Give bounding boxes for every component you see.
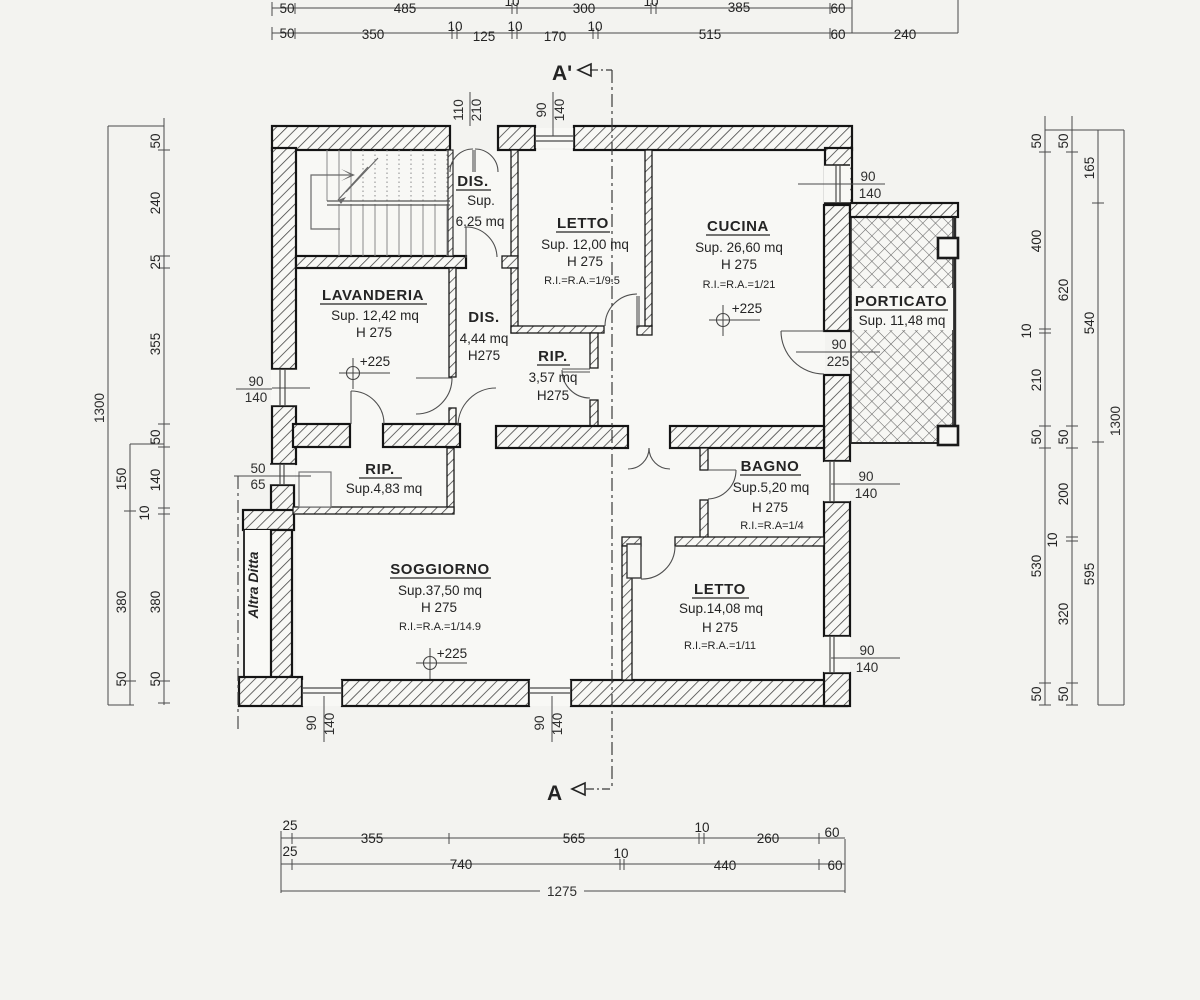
svg-text:140: 140 bbox=[856, 660, 879, 675]
svg-text:200: 200 bbox=[1056, 483, 1071, 506]
svg-text:Sup. 26,60 mq: Sup. 26,60 mq bbox=[695, 240, 783, 255]
svg-text:50: 50 bbox=[1056, 686, 1071, 701]
svg-text:6,25 mq: 6,25 mq bbox=[456, 214, 505, 229]
svg-text:Altra Ditta: Altra Ditta bbox=[245, 551, 261, 619]
svg-text:440: 440 bbox=[714, 858, 737, 873]
svg-text:140: 140 bbox=[322, 713, 337, 736]
svg-text:170: 170 bbox=[544, 29, 567, 44]
svg-text:R.I.=R.A.=1/9.5: R.I.=R.A.=1/9.5 bbox=[544, 275, 620, 287]
svg-text:Sup. 11,48 mq: Sup. 11,48 mq bbox=[859, 313, 946, 328]
svg-text:Sup.5,20 mq: Sup.5,20 mq bbox=[733, 480, 810, 495]
svg-text:620: 620 bbox=[1056, 279, 1071, 302]
svg-text:10: 10 bbox=[504, 0, 519, 9]
svg-text:10: 10 bbox=[694, 820, 709, 835]
svg-text:10: 10 bbox=[613, 846, 628, 861]
svg-text:65: 65 bbox=[250, 477, 265, 492]
svg-text:10: 10 bbox=[447, 19, 462, 34]
svg-text:H275: H275 bbox=[537, 388, 569, 403]
svg-text:25: 25 bbox=[148, 254, 163, 269]
svg-text:R.I.=R.A=1/4: R.I.=R.A=1/4 bbox=[740, 520, 804, 532]
svg-text:Sup. 12,00 mq: Sup. 12,00 mq bbox=[541, 237, 629, 252]
svg-text:DIS.: DIS. bbox=[457, 173, 489, 190]
svg-text:90: 90 bbox=[858, 469, 873, 484]
svg-text:385: 385 bbox=[728, 0, 751, 15]
svg-text:R.I.=R.A.=1/11: R.I.=R.A.=1/11 bbox=[684, 640, 756, 652]
svg-text:400: 400 bbox=[1029, 230, 1044, 253]
svg-text:240: 240 bbox=[894, 27, 917, 42]
svg-text:LETTO: LETTO bbox=[557, 215, 609, 232]
svg-text:50: 50 bbox=[279, 26, 294, 41]
svg-text:240: 240 bbox=[148, 192, 163, 215]
svg-text:60: 60 bbox=[824, 825, 839, 840]
svg-text:A': A' bbox=[552, 62, 572, 85]
svg-text:225: 225 bbox=[827, 354, 850, 369]
svg-text:50: 50 bbox=[1029, 429, 1044, 444]
svg-text:+225: +225 bbox=[732, 301, 762, 316]
svg-text:LETTO: LETTO bbox=[694, 581, 746, 598]
svg-text:Sup.: Sup. bbox=[467, 193, 495, 208]
svg-text:165: 165 bbox=[1082, 157, 1097, 180]
svg-text:150: 150 bbox=[114, 468, 129, 491]
svg-text:PORTICATO: PORTICATO bbox=[855, 293, 947, 310]
svg-text:210: 210 bbox=[469, 99, 484, 122]
svg-text:BAGNO: BAGNO bbox=[741, 458, 800, 475]
svg-text:140: 140 bbox=[148, 469, 163, 492]
svg-text:H 275: H 275 bbox=[721, 257, 757, 272]
svg-text:90: 90 bbox=[534, 102, 549, 117]
svg-text:+225: +225 bbox=[437, 646, 467, 661]
svg-text:320: 320 bbox=[1056, 603, 1071, 626]
svg-text:140: 140 bbox=[550, 713, 565, 736]
svg-text:595: 595 bbox=[1082, 563, 1097, 586]
svg-text:H 275: H 275 bbox=[356, 325, 392, 340]
svg-text:1300: 1300 bbox=[92, 393, 107, 423]
svg-text:355: 355 bbox=[148, 333, 163, 356]
svg-text:540: 540 bbox=[1082, 312, 1097, 335]
svg-text:140: 140 bbox=[855, 486, 878, 501]
svg-text:140: 140 bbox=[859, 186, 882, 201]
svg-text:4,44 mq: 4,44 mq bbox=[460, 331, 509, 346]
svg-text:RIP.: RIP. bbox=[538, 348, 568, 365]
svg-text:LAVANDERIA: LAVANDERIA bbox=[322, 287, 424, 304]
svg-text:SOGGIORNO: SOGGIORNO bbox=[390, 561, 490, 578]
svg-text:90: 90 bbox=[860, 169, 875, 184]
svg-text:50: 50 bbox=[279, 1, 294, 16]
svg-text:300: 300 bbox=[573, 1, 596, 16]
svg-text:H 275: H 275 bbox=[421, 600, 457, 615]
svg-text:CUCINA: CUCINA bbox=[707, 218, 769, 235]
svg-text:50: 50 bbox=[250, 461, 265, 476]
svg-text:Sup.37,50 mq: Sup.37,50 mq bbox=[398, 583, 482, 598]
svg-text:A: A bbox=[547, 782, 562, 805]
svg-text:50: 50 bbox=[1029, 686, 1044, 701]
svg-text:90: 90 bbox=[248, 374, 263, 389]
svg-text:60: 60 bbox=[830, 27, 845, 42]
svg-text:25: 25 bbox=[282, 844, 297, 859]
svg-text:260: 260 bbox=[757, 831, 780, 846]
svg-text:Sup.14,08 mq: Sup.14,08 mq bbox=[679, 601, 763, 616]
svg-text:1300: 1300 bbox=[1108, 406, 1123, 436]
svg-text:380: 380 bbox=[148, 591, 163, 614]
svg-text:485: 485 bbox=[394, 1, 417, 16]
svg-text:355: 355 bbox=[361, 831, 384, 846]
svg-text:1275: 1275 bbox=[547, 884, 577, 899]
svg-text:10: 10 bbox=[587, 19, 602, 34]
svg-text:R.I.=R.A.=1/14.9: R.I.=R.A.=1/14.9 bbox=[399, 621, 481, 633]
svg-text:Sup.4,83 mq: Sup.4,83 mq bbox=[346, 481, 423, 496]
svg-text:140: 140 bbox=[552, 99, 567, 122]
svg-text:R.I.=R.A.=1/21: R.I.=R.A.=1/21 bbox=[703, 279, 776, 291]
svg-text:50: 50 bbox=[148, 429, 163, 444]
svg-text:125: 125 bbox=[473, 29, 496, 44]
svg-text:90: 90 bbox=[304, 715, 319, 730]
svg-text:DIS.: DIS. bbox=[468, 309, 500, 326]
svg-text:10: 10 bbox=[1019, 323, 1034, 338]
svg-text:H 275: H 275 bbox=[567, 254, 603, 269]
svg-text:+225: +225 bbox=[360, 354, 390, 369]
svg-text:50: 50 bbox=[148, 671, 163, 686]
svg-text:90: 90 bbox=[859, 643, 874, 658]
svg-text:10: 10 bbox=[1045, 532, 1060, 547]
svg-text:140: 140 bbox=[245, 390, 268, 405]
svg-text:10: 10 bbox=[643, 0, 658, 9]
svg-text:50: 50 bbox=[1056, 429, 1071, 444]
svg-text:25: 25 bbox=[282, 818, 297, 833]
svg-text:60: 60 bbox=[827, 858, 842, 873]
svg-text:210: 210 bbox=[1029, 369, 1044, 392]
svg-text:110: 110 bbox=[451, 99, 466, 121]
svg-text:530: 530 bbox=[1029, 555, 1044, 578]
svg-text:350: 350 bbox=[362, 27, 385, 42]
svg-text:10: 10 bbox=[137, 505, 152, 520]
svg-text:50: 50 bbox=[1056, 133, 1071, 148]
svg-text:565: 565 bbox=[563, 831, 586, 846]
svg-text:Sup. 12,42 mq: Sup. 12,42 mq bbox=[331, 308, 419, 323]
svg-text:50: 50 bbox=[1029, 133, 1044, 148]
svg-text:H 275: H 275 bbox=[752, 500, 788, 515]
svg-text:10: 10 bbox=[507, 19, 522, 34]
svg-text:740: 740 bbox=[450, 857, 473, 872]
svg-text:90: 90 bbox=[532, 715, 547, 730]
svg-text:RIP.: RIP. bbox=[365, 461, 395, 478]
svg-text:50: 50 bbox=[148, 133, 163, 148]
svg-text:380: 380 bbox=[114, 591, 129, 614]
svg-text:3,57 mq: 3,57 mq bbox=[529, 370, 578, 385]
svg-text:H 275: H 275 bbox=[702, 620, 738, 635]
svg-text:60: 60 bbox=[830, 1, 845, 16]
svg-text:515: 515 bbox=[699, 27, 722, 42]
svg-text:50: 50 bbox=[114, 671, 129, 686]
svg-text:90: 90 bbox=[831, 337, 846, 352]
svg-text:H275: H275 bbox=[468, 348, 500, 363]
